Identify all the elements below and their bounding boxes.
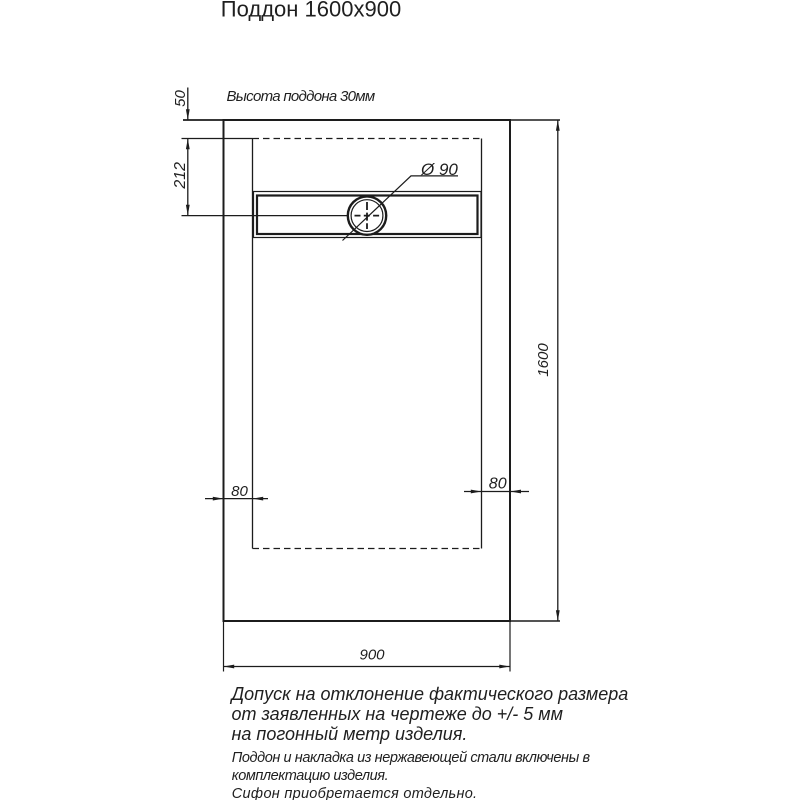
svg-text:Поддон и накладка из нержавеющ: Поддон и накладка из нержавеющей стали в… bbox=[232, 750, 591, 766]
svg-text:Сифон приобретается отдельно.: Сифон приобретается отдельно. bbox=[232, 786, 478, 800]
svg-text:80: 80 bbox=[231, 483, 248, 500]
svg-text:от заявленных на чертеже до +/: от заявленных на чертеже до +/- 5 мм bbox=[232, 704, 563, 724]
svg-text:900: 900 bbox=[359, 647, 385, 664]
svg-text:Высота поддона 30мм: Высота поддона 30мм bbox=[227, 88, 375, 105]
svg-text:комплектацию изделия.: комплектацию изделия. bbox=[232, 768, 388, 784]
svg-text:Поддон 1600х900: Поддон 1600х900 bbox=[221, 0, 401, 22]
svg-text:212: 212 bbox=[172, 162, 189, 190]
svg-text:1600: 1600 bbox=[535, 343, 552, 377]
svg-text:80: 80 bbox=[489, 476, 507, 493]
svg-text:Допуск на отклонение фактическ: Допуск на отклонение фактического размер… bbox=[230, 684, 629, 704]
svg-text:Ø 90: Ø 90 bbox=[420, 160, 458, 179]
svg-text:на погонный метр изделия.: на погонный метр изделия. bbox=[232, 724, 468, 744]
svg-text:50: 50 bbox=[172, 90, 189, 107]
